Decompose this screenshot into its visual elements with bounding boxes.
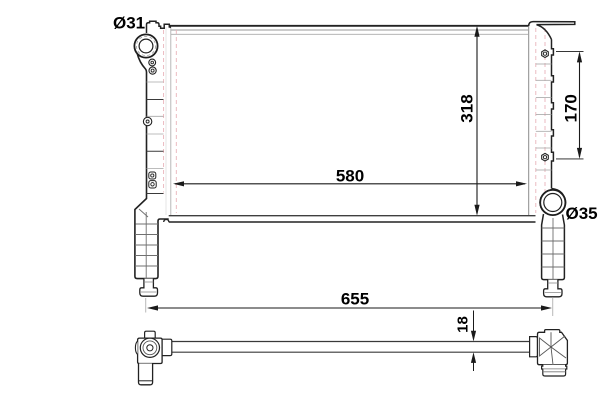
- svg-text:580: 580: [336, 167, 364, 186]
- svg-text:Ø31: Ø31: [113, 14, 145, 33]
- svg-text:318: 318: [458, 94, 477, 122]
- svg-text:655: 655: [341, 290, 369, 309]
- svg-text:170: 170: [562, 94, 581, 122]
- svg-text:18: 18: [455, 316, 472, 333]
- svg-text:Ø35: Ø35: [566, 204, 598, 223]
